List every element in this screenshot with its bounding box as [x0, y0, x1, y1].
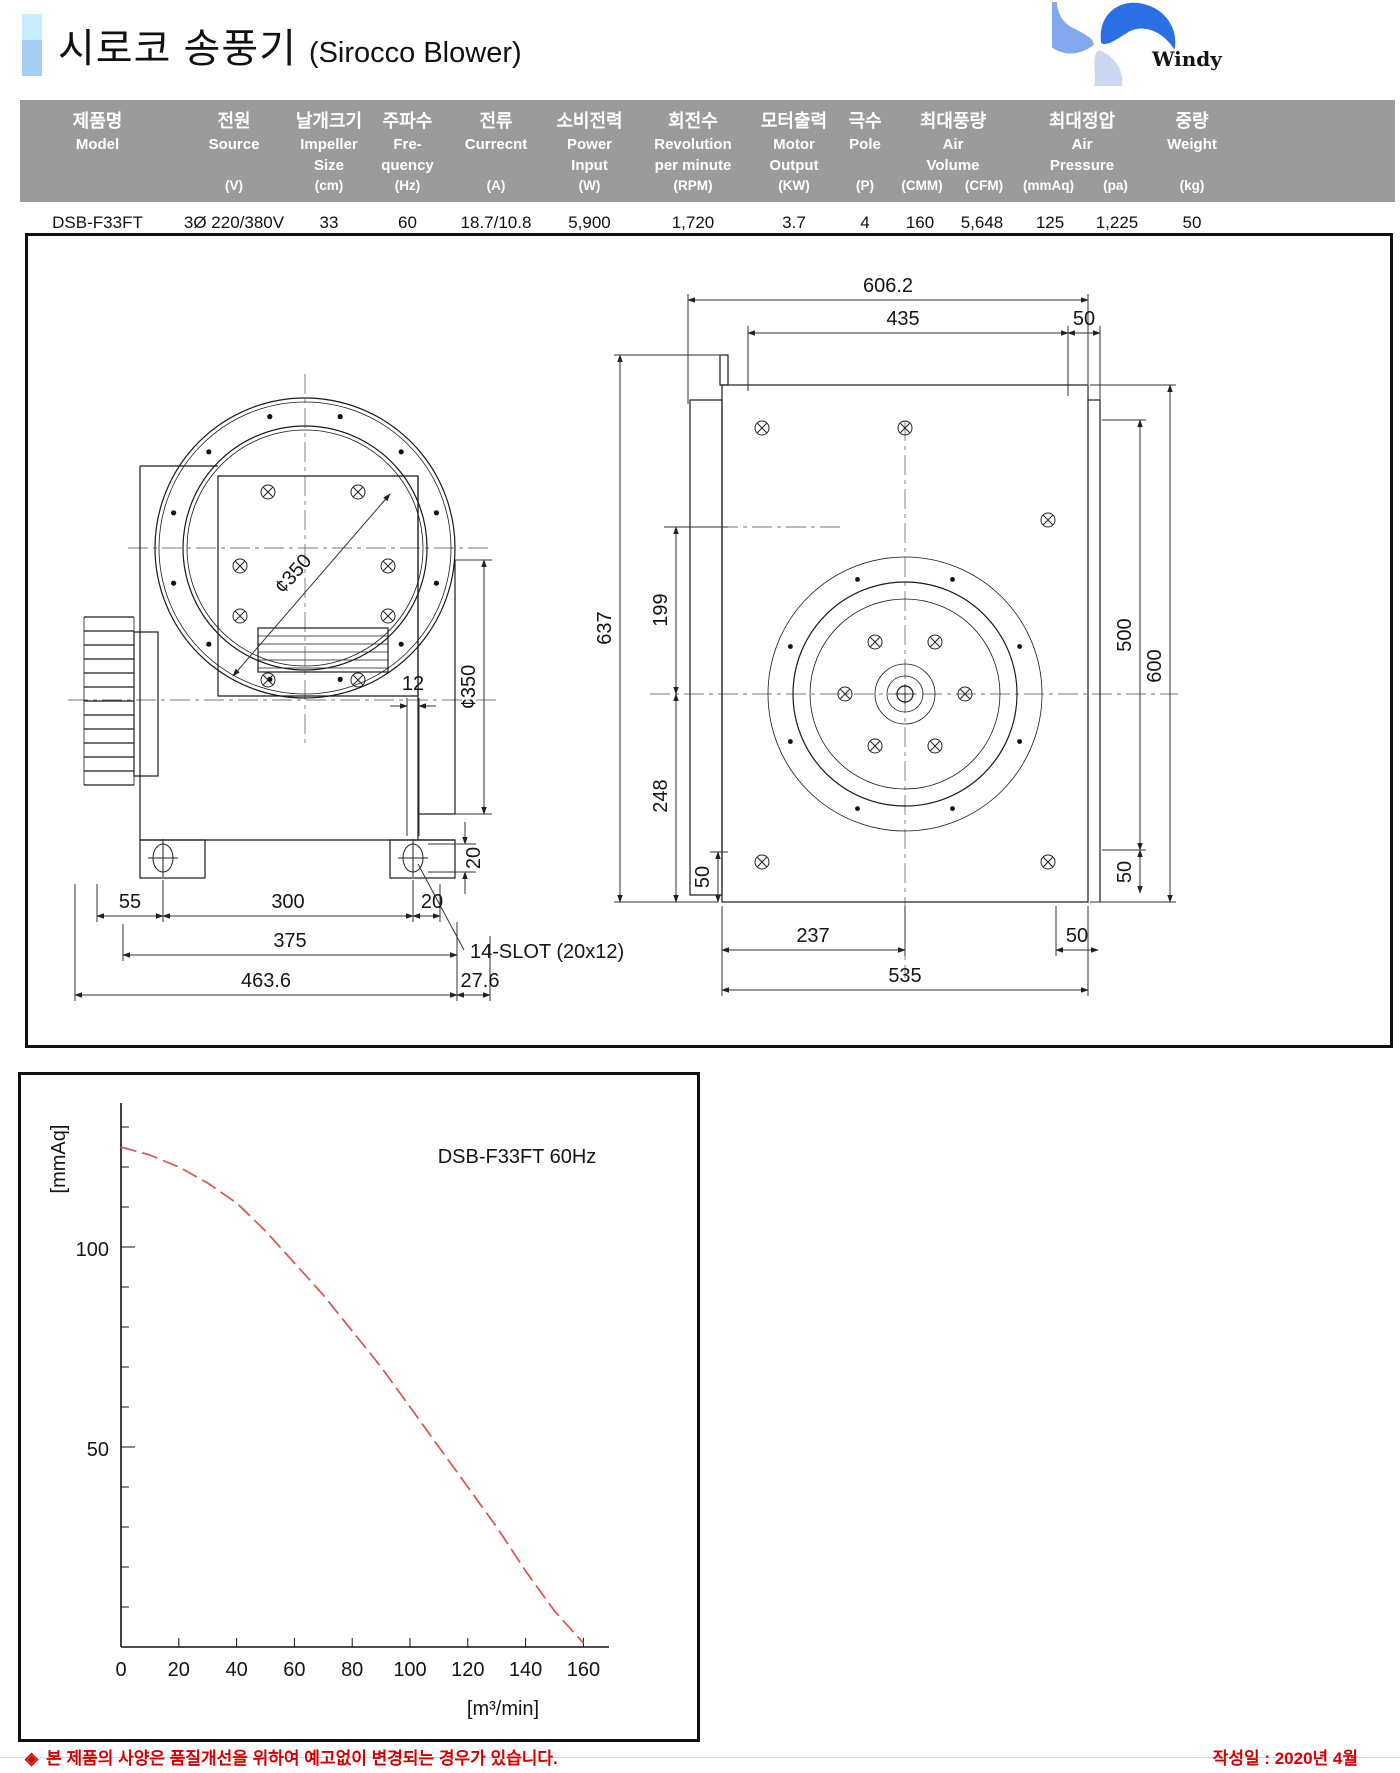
cell-weight: 50 [1149, 212, 1235, 234]
dim-50-bottom: 50 [1066, 925, 1088, 947]
cell-cfm: 5,648 [949, 212, 1015, 234]
cell-source: 3Ø 220/380V [175, 212, 293, 234]
accent-bar [22, 14, 42, 76]
brand-logo: Windy [1052, 2, 1342, 91]
spec-table-row: DSB-F33FT 3Ø 220/380V 33 60 18.7/10.8 5,… [20, 202, 1395, 234]
chart-x-axis-label: [m³/min] [467, 1698, 539, 1720]
col-impeller: 날개크기 Impeller Size (cm) [293, 108, 365, 196]
svg-text:20: 20 [168, 1659, 190, 1681]
dim-463-6: 463.6 [241, 970, 291, 992]
dim-375: 375 [273, 930, 306, 952]
svg-text:80: 80 [341, 1659, 363, 1681]
spec-table: 제품명 Model 전원 Source (V) 날개크기 Impeller Si… [20, 100, 1395, 234]
cell-mmaq: 125 [1015, 212, 1085, 234]
dim-slot-width: 12 [402, 673, 424, 695]
dim-slot-height: 20 [463, 847, 485, 869]
dim-outlet-diameter: ¢350 [458, 665, 480, 710]
cell-current: 18.7/10.8 [450, 212, 542, 234]
cell-power: 5,900 [542, 212, 637, 234]
chart-title: DSB-F33FT 60Hz [438, 1146, 597, 1168]
header: 시로코 송풍기 (Sirocco Blower) [22, 14, 522, 76]
svg-text:100: 100 [393, 1659, 426, 1681]
svg-text:160: 160 [567, 1659, 600, 1681]
windy-logo: Windy [1052, 2, 1342, 86]
cell-model: DSB-F33FT [20, 212, 175, 234]
col-source: 전원 Source (V) [175, 108, 293, 196]
svg-text:140: 140 [509, 1659, 542, 1681]
title-korean: 시로코 송풍기 [58, 16, 297, 74]
dim-637: 637 [594, 611, 616, 644]
svg-text:100: 100 [76, 1239, 109, 1261]
performance-chart-panel: [mmAq] DSB-F33FT 60Hz [m³/min] 501000204… [18, 1072, 700, 1742]
dim-27-6: 27.6 [461, 970, 500, 992]
brand-name: Windy [1151, 47, 1223, 71]
cell-rpm: 1,720 [637, 212, 749, 234]
dim-50-top: 50 [1073, 308, 1095, 330]
svg-text:120: 120 [451, 1659, 484, 1681]
dim-50-left: 50 [692, 866, 714, 888]
cell-pole: 4 [839, 212, 891, 234]
dim-55: 55 [119, 891, 141, 913]
title-english: (Sirocco Blower) [309, 37, 522, 70]
dim-600: 600 [1144, 649, 1166, 682]
svg-text:0: 0 [115, 1659, 126, 1681]
dim-248: 248 [650, 779, 672, 812]
footer-note: ◈본 제품의 사양은 품질개선을 위하여 예고없이 변경되는 경우가 있습니다. [25, 1744, 558, 1769]
footer-date: 작성일 : 2020년 4월 [1213, 1744, 1358, 1769]
technical-drawing-panel: ¢350 [25, 233, 1393, 1048]
col-air-pressure: 최대정압 Air Pressure (mmAq) (pa) [1015, 108, 1149, 196]
col-pole: 극수 Pole (P) [839, 108, 891, 196]
spec-sheet: 시로코 송풍기 (Sirocco Blower) Windy 제품명 [0, 0, 1400, 1773]
dim-606-2: 606.2 [863, 275, 913, 297]
col-rpm: 회전수 Revolution per minute (RPM) [637, 108, 749, 196]
col-frequency: 주파수 Fre- quency (Hz) [365, 108, 450, 196]
dim-500: 500 [1114, 618, 1136, 651]
dim-199: 199 [650, 593, 672, 626]
col-power: 소비전력 Power Input (W) [542, 108, 637, 196]
page-title: 시로코 송풍기 (Sirocco Blower) [58, 16, 522, 74]
front-view: ¢350 [68, 374, 624, 1001]
spec-table-header: 제품명 Model 전원 Source (V) 날개크기 Impeller Si… [20, 100, 1395, 202]
dim-435: 435 [886, 308, 919, 330]
col-spacer [1235, 108, 1395, 196]
svg-text:50: 50 [87, 1439, 109, 1461]
dim-300: 300 [271, 891, 304, 913]
svg-text:40: 40 [225, 1659, 247, 1681]
footer: ◈본 제품의 사양은 품질개선을 위하여 예고없이 변경되는 경우가 있습니다.… [25, 1744, 1358, 1769]
cell-motor-output: 3.7 [749, 212, 839, 234]
col-weight: 중량 Weight (kg) [1149, 108, 1235, 196]
chart-y-axis-label: [mmAq] [48, 1125, 70, 1194]
cell-frequency: 60 [365, 212, 450, 234]
chart-plot-area: 50100020406080100120140160 [76, 1103, 609, 1681]
dim-20: 20 [421, 891, 443, 913]
slot-note: 14-SLOT (20x12) [470, 941, 624, 963]
col-current: 전류 Currecnt (A) [450, 108, 542, 196]
dim-535: 535 [888, 965, 921, 987]
col-motor-output: 모터출력 Motor Output (KW) [749, 108, 839, 196]
side-view: 606.2 435 50 637 199 248 [594, 275, 1178, 996]
col-model: 제품명 Model [20, 108, 175, 196]
cell-cmm: 160 [891, 212, 949, 234]
technical-drawing: ¢350 [28, 236, 1390, 1045]
performance-chart: [mmAq] DSB-F33FT 60Hz [m³/min] 501000204… [21, 1075, 697, 1739]
motor [84, 617, 158, 785]
cell-pa: 1,225 [1085, 212, 1149, 234]
pinwheel-icon [1052, 2, 1185, 86]
dim-inlet-diameter: ¢350 [271, 550, 317, 598]
dim-50-right: 50 [1114, 861, 1136, 883]
cell-impeller: 33 [293, 212, 365, 234]
col-air-volume: 최대풍량 Air Volume (CMM) (CFM) [891, 108, 1015, 196]
dim-237: 237 [796, 925, 829, 947]
diamond-bullet-icon: ◈ [25, 1749, 38, 1768]
svg-text:60: 60 [283, 1659, 305, 1681]
